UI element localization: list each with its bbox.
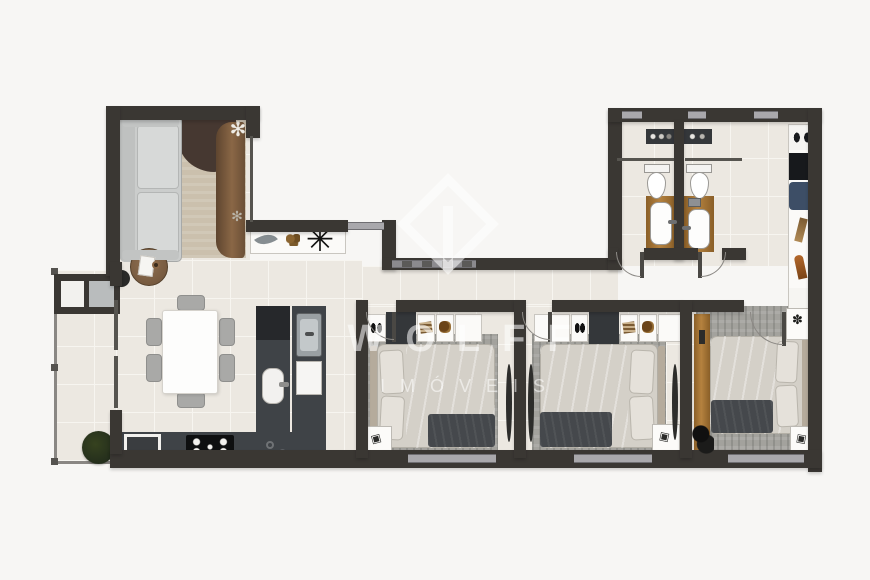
wall-balcony-stub-bottom <box>110 410 122 454</box>
wall-living-top <box>110 106 260 120</box>
wardrobe-shoe-box <box>571 314 588 342</box>
bathroom2-window <box>688 111 706 119</box>
shower-glass <box>617 158 674 161</box>
wall-bedrooms-top-a <box>396 300 520 312</box>
bed2-pillow <box>629 349 655 394</box>
shower-niche-shelf <box>684 129 712 144</box>
faucet-icon <box>668 220 677 224</box>
balcony-sliding-door <box>114 300 118 350</box>
dining-table <box>162 310 218 394</box>
bed3-blanket <box>711 400 773 433</box>
mug-icon <box>152 261 160 269</box>
wall-balcony-stub-top <box>110 262 122 286</box>
sofa-cushion <box>137 192 179 256</box>
wall-bathrooms-south-b <box>644 248 698 260</box>
dining-window <box>348 222 384 230</box>
dining-chair <box>177 295 205 311</box>
bed3-pillow <box>775 340 799 383</box>
dining-chair <box>146 318 162 346</box>
balcony-sliding-door <box>114 356 118 408</box>
living-window <box>250 136 253 222</box>
wall-master-top <box>692 300 744 312</box>
bathroom2-door-swing <box>701 252 726 277</box>
bed3-pillow <box>775 384 799 427</box>
wall-bedroom-divider-2 <box>680 300 692 458</box>
wall-bedrooms-top-b <box>552 300 684 312</box>
dining-chair <box>219 354 235 382</box>
shower-niche-shelf <box>646 129 674 144</box>
railing-post <box>51 458 58 465</box>
flower-decor-icon: ✻ <box>229 208 245 224</box>
frame-decor-icon: ▣ <box>658 431 670 444</box>
folded-clothes-icon <box>622 321 635 334</box>
hanging-clothes-icon <box>692 422 714 456</box>
wall-living-left <box>106 106 120 276</box>
bed1-pillow <box>379 349 405 394</box>
curtain-icon <box>528 364 534 442</box>
flowers-decor-icon: ✽ <box>792 313 803 326</box>
soap-tray-icon <box>688 198 701 207</box>
vanity-sink <box>688 209 710 249</box>
curtain-icon <box>672 364 678 440</box>
dining-chair <box>219 318 235 346</box>
planter-box-white <box>61 281 84 307</box>
sofa-cushion <box>137 125 179 189</box>
dining-chair <box>146 354 162 382</box>
wardrobe-handle <box>699 330 705 344</box>
bedroom2-window <box>574 454 652 463</box>
faucet-icon <box>305 332 314 336</box>
kitchen-fridge-top <box>256 306 290 340</box>
counter-knob <box>266 441 274 449</box>
wardrobe-empty-box <box>455 314 482 342</box>
window-curtain <box>216 122 245 258</box>
entry-sliding-door <box>392 260 476 268</box>
wall-right-exterior <box>808 108 822 472</box>
dining-chair <box>177 392 205 408</box>
bathroom1-door-swing <box>616 252 641 277</box>
laundry-window <box>754 111 778 119</box>
curtain-icon <box>506 364 512 442</box>
flower-decor-icon: ✻ <box>228 118 248 142</box>
master-window <box>728 454 804 463</box>
bedroom1-window <box>408 454 496 463</box>
bed2-blanket <box>540 412 612 447</box>
faucet-icon <box>682 226 691 230</box>
wall-rightblock-left <box>608 108 622 270</box>
railing-post <box>51 364 58 371</box>
bathroom1-window <box>622 111 642 119</box>
wall-bedroom1-left <box>356 300 368 458</box>
shower-glass <box>685 158 742 161</box>
frame-decor-icon: ▣ <box>795 433 807 446</box>
wardrobe-empty-box <box>658 314 682 342</box>
folded-clothes-icon <box>419 321 432 334</box>
dishwasher-white <box>296 361 322 395</box>
wall-living-right-post <box>246 106 260 138</box>
bed1-blanket <box>428 414 495 447</box>
wall-dining-top <box>246 220 348 232</box>
stones-decor-icon <box>286 234 300 246</box>
faucet-icon <box>279 382 289 387</box>
wardrobe-closed-section <box>589 312 619 344</box>
wall-bathroom-divider <box>674 120 684 260</box>
folded-clothes-icon <box>642 321 654 333</box>
folded-clothes-icon <box>439 321 451 333</box>
sofa-back <box>120 116 135 262</box>
floor-plan-canvas: ✻ ✻ ✳ <box>0 0 870 580</box>
